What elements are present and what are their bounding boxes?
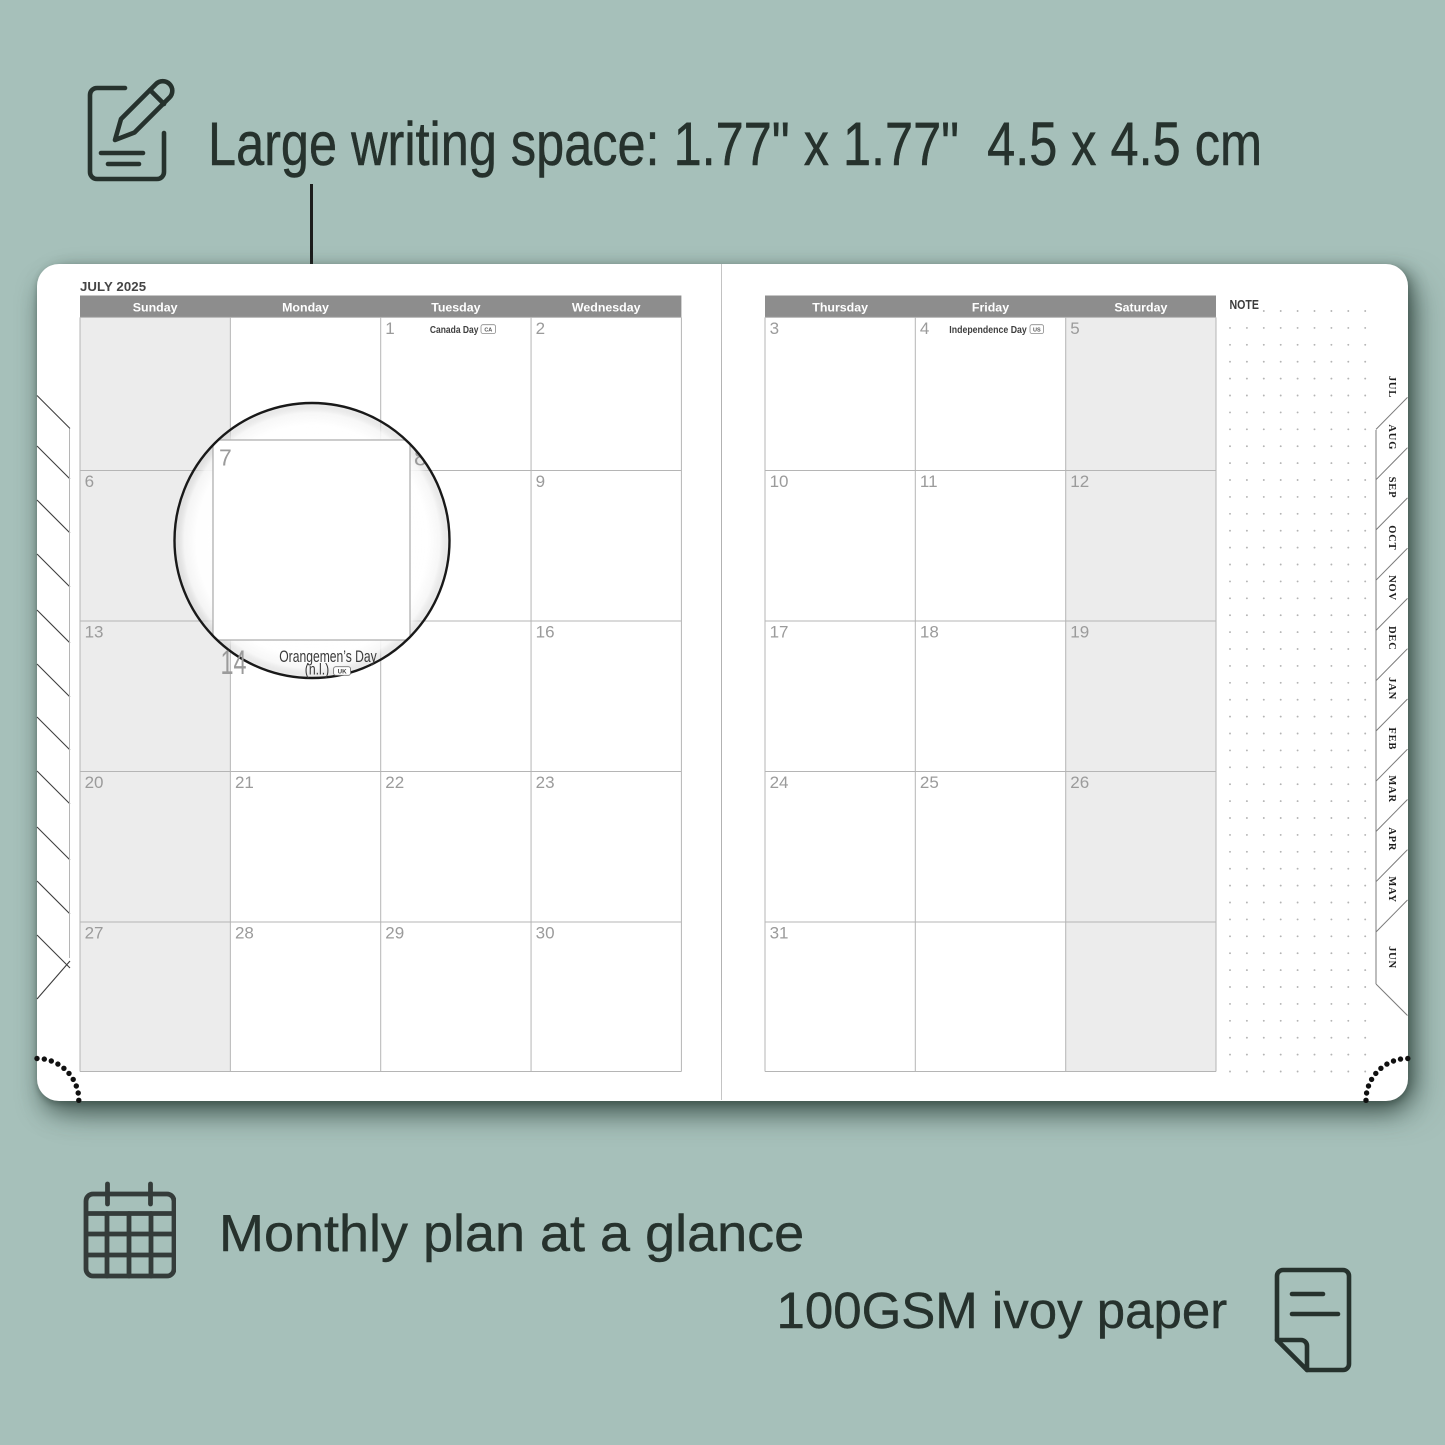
svg-text:Saturday: Saturday xyxy=(1114,301,1167,315)
svg-text:24: 24 xyxy=(770,773,789,792)
svg-text:18: 18 xyxy=(920,623,939,642)
svg-text:11: 11 xyxy=(920,472,938,491)
svg-text:Wednesday: Wednesday xyxy=(572,301,641,315)
svg-text:9: 9 xyxy=(536,472,545,491)
svg-text:CA: CA xyxy=(484,328,492,334)
svg-text:27: 27 xyxy=(85,924,104,943)
svg-text:21: 21 xyxy=(235,773,254,792)
svg-text:19: 19 xyxy=(1070,623,1089,642)
svg-text:28: 28 xyxy=(235,924,254,943)
svg-text:NOTE: NOTE xyxy=(1230,298,1260,312)
svg-text:AUG: AUG xyxy=(1386,424,1397,450)
svg-text:31: 31 xyxy=(770,924,789,943)
svg-text:MAR: MAR xyxy=(1386,775,1397,802)
svg-text:OCT: OCT xyxy=(1386,525,1397,550)
svg-text:Canada Day: Canada Day xyxy=(430,324,479,336)
svg-text:MAY: MAY xyxy=(1386,876,1397,903)
svg-text:5: 5 xyxy=(1070,319,1079,338)
svg-text:20: 20 xyxy=(85,773,104,792)
svg-text:22: 22 xyxy=(385,773,404,792)
svg-text:JUN: JUN xyxy=(1386,946,1397,969)
svg-text:(n.l.): (n.l.) xyxy=(305,662,330,679)
svg-text:14: 14 xyxy=(221,644,247,682)
svg-text:Monday: Monday xyxy=(282,301,329,315)
svg-text:DEC: DEC xyxy=(1386,626,1397,651)
svg-text:12: 12 xyxy=(1070,472,1089,491)
svg-text:Independence Day: Independence Day xyxy=(949,324,1027,336)
svg-text:US: US xyxy=(1033,328,1041,334)
svg-text:Sunday: Sunday xyxy=(133,301,178,315)
svg-text:23: 23 xyxy=(536,773,555,792)
svg-text:JAN: JAN xyxy=(1386,677,1397,700)
svg-text:UK: UK xyxy=(338,668,347,675)
svg-text:JUL: JUL xyxy=(1386,376,1397,398)
svg-text:1: 1 xyxy=(385,319,394,338)
svg-text:6: 6 xyxy=(85,472,94,491)
svg-text:10: 10 xyxy=(770,472,789,491)
svg-text:26: 26 xyxy=(1070,773,1089,792)
svg-text:17: 17 xyxy=(770,623,789,642)
svg-text:4: 4 xyxy=(920,319,929,338)
svg-text:29: 29 xyxy=(385,924,404,943)
svg-text:Tuesday: Tuesday xyxy=(431,301,480,315)
svg-text:3: 3 xyxy=(770,319,779,338)
svg-text:25: 25 xyxy=(920,773,939,792)
svg-text:NOV: NOV xyxy=(1386,575,1397,601)
svg-text:7: 7 xyxy=(219,445,232,471)
svg-text:SEP: SEP xyxy=(1386,477,1397,499)
svg-text:16: 16 xyxy=(536,623,555,642)
svg-text:APR: APR xyxy=(1386,827,1397,851)
svg-text:13: 13 xyxy=(85,623,104,642)
svg-text:2: 2 xyxy=(536,319,545,338)
svg-text:30: 30 xyxy=(536,924,555,943)
svg-text:Friday: Friday xyxy=(972,301,1009,315)
svg-text:Thursday: Thursday xyxy=(812,301,868,315)
svg-text:FEB: FEB xyxy=(1386,727,1397,750)
